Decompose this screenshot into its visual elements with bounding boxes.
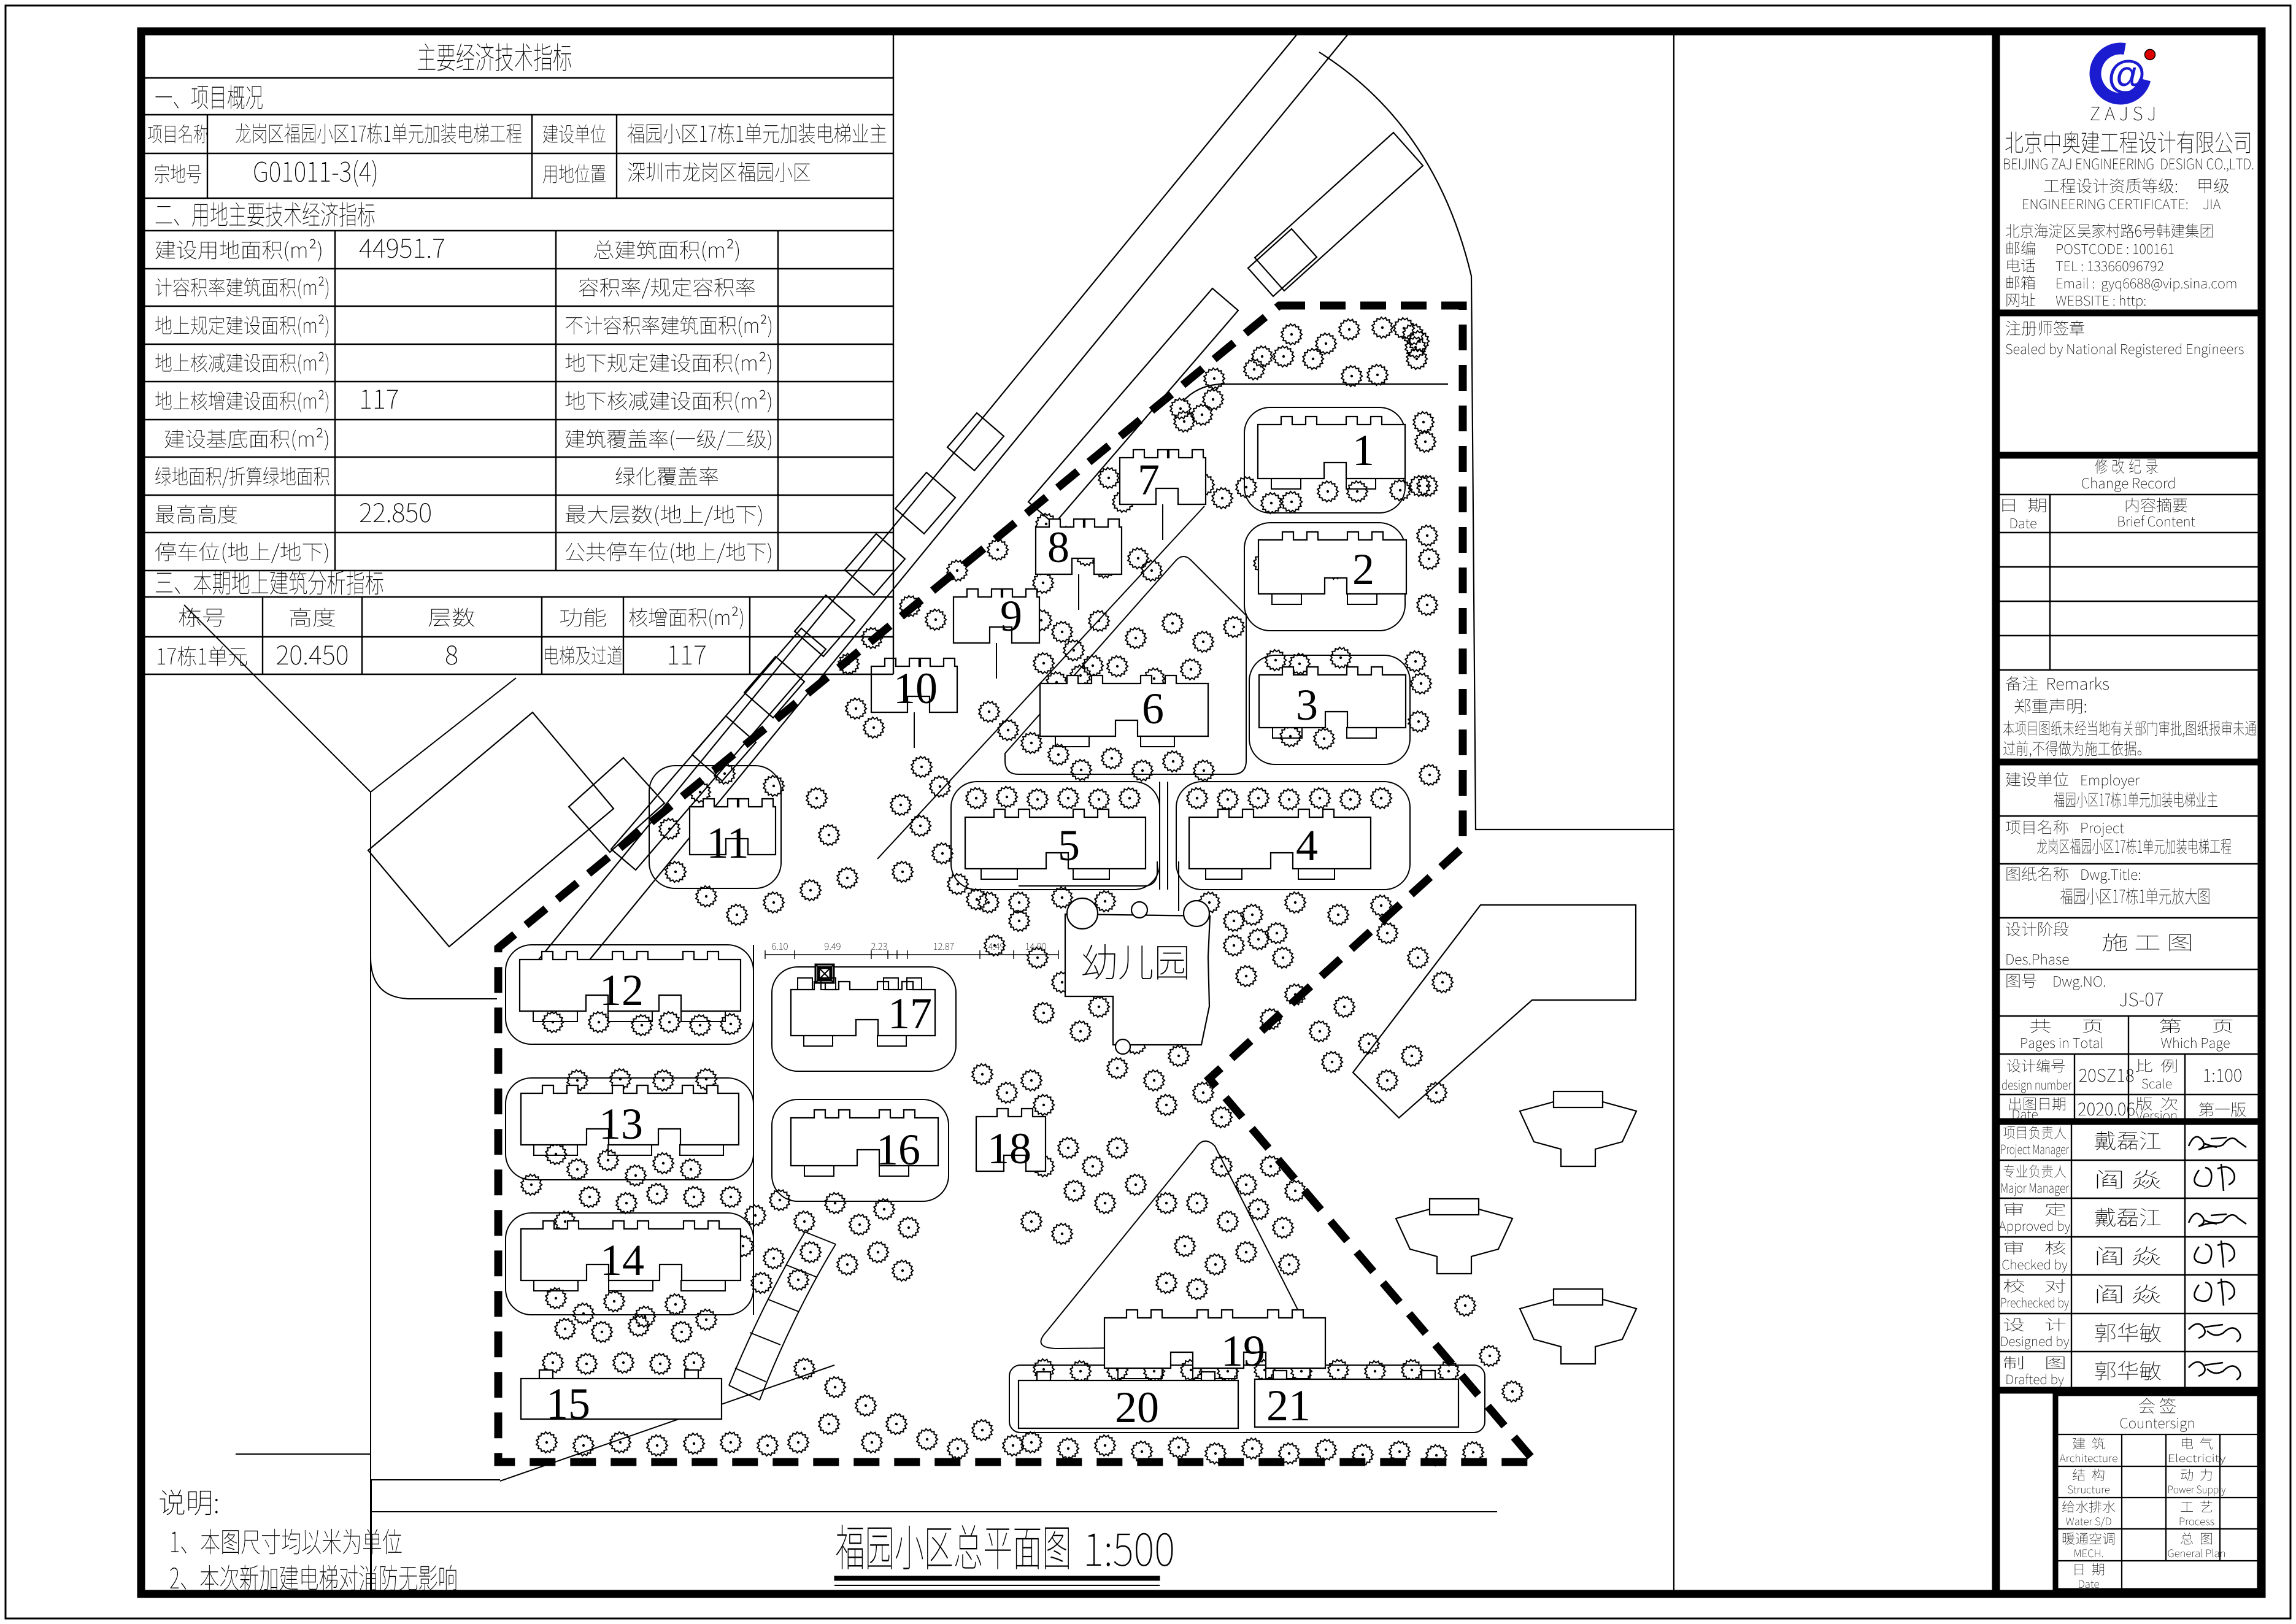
svg-text:6: 6	[1142, 684, 1164, 733]
svg-text:20: 20	[1115, 1383, 1159, 1432]
svg-text:15: 15	[546, 1379, 590, 1428]
svg-text:4: 4	[1296, 821, 1318, 870]
svg-text:12: 12	[599, 966, 644, 1015]
svg-text:5: 5	[1058, 821, 1080, 870]
svg-text:11: 11	[706, 818, 749, 868]
svg-text:16: 16	[876, 1125, 920, 1174]
svg-text:8: 8	[1047, 523, 1069, 572]
svg-text:19: 19	[1221, 1326, 1265, 1376]
svg-text:17: 17	[888, 989, 932, 1038]
svg-text:7: 7	[1138, 455, 1160, 504]
svg-text:18: 18	[987, 1124, 1031, 1173]
svg-text:13: 13	[599, 1099, 643, 1149]
svg-text:14: 14	[600, 1236, 644, 1285]
svg-text:2: 2	[1352, 545, 1374, 594]
svg-text:10: 10	[893, 664, 938, 713]
svg-text:9: 9	[1000, 591, 1022, 641]
svg-text:21: 21	[1266, 1381, 1311, 1430]
svg-text:3: 3	[1296, 680, 1318, 729]
svg-text:1: 1	[1352, 426, 1374, 475]
svg-text:@: @	[2108, 52, 2146, 96]
